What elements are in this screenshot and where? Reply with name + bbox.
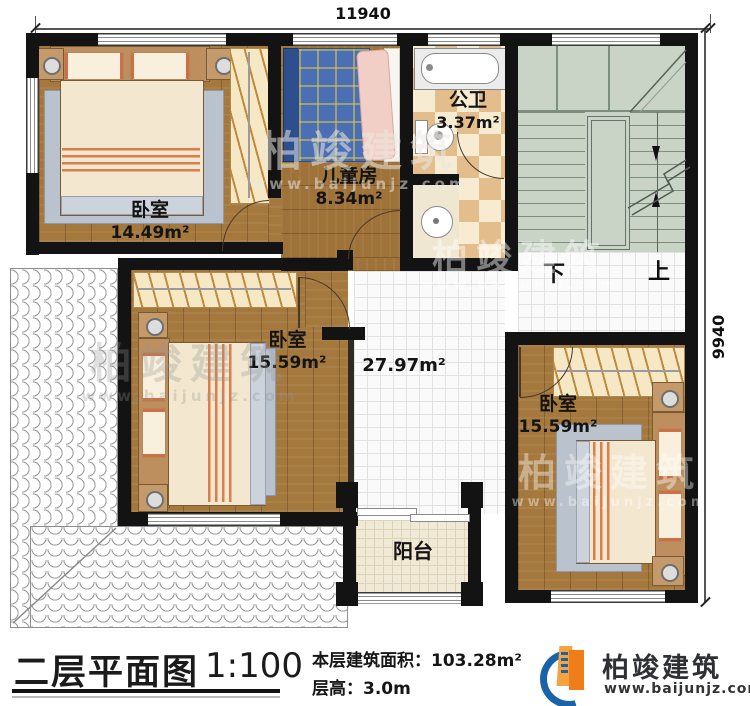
bedroom2-name: 卧室 — [240, 330, 335, 351]
title-underline-thin — [12, 696, 280, 698]
bathroom-name: 公卫 — [430, 90, 506, 111]
bedroom3-wardrobe-rail — [557, 370, 679, 372]
pillar-balcony-tr — [461, 482, 483, 508]
wall-bath-stairs — [505, 46, 518, 266]
brand-logo-windows-icon — [561, 652, 568, 676]
hall-area: 27.97m² — [352, 356, 456, 376]
window-bedroom3-bottom — [551, 590, 665, 603]
bedroom3-bed-fold — [576, 441, 590, 563]
floor-height-text: 层高：3.0m — [312, 674, 411, 699]
stairs-up-label: 上 — [648, 254, 670, 286]
bedroom1-name: 卧室 — [95, 200, 205, 221]
bedroom3-name: 卧室 — [512, 394, 604, 415]
floor-plan-sheet: 卧室 14.49m² 儿童房 8.34m² 公卫 3.37m² 卧室 15.59… — [0, 0, 750, 706]
wall-bedroom3-left — [505, 332, 518, 603]
roof-bottom — [30, 526, 348, 628]
bedroom1-pillow-right — [130, 52, 190, 80]
kids-door-floor-patch — [348, 258, 400, 271]
bedroom1-area: 14.49m² — [95, 224, 205, 243]
wall-kids-bath — [400, 46, 413, 258]
sheet-scale: 1:100 — [205, 646, 303, 686]
dim-top-value: 11940 — [320, 4, 406, 23]
hall-floor — [354, 271, 505, 514]
wall-basin-stub — [413, 174, 459, 185]
wall-bedroom2-top — [118, 258, 305, 270]
stairs-arrow-down — [652, 146, 660, 161]
door-bedroom3-leaf — [519, 347, 521, 397]
sheet-title: 二层平面图 — [14, 644, 199, 695]
pillar-balcony-tl — [336, 482, 358, 508]
dim-right-line — [704, 28, 706, 603]
wall-bedroom1-kids — [268, 46, 281, 198]
bedroom3-area: 15.59m² — [508, 418, 608, 437]
sliding-door-pane-right — [410, 514, 470, 522]
kids-room-name: 儿童房 — [293, 166, 405, 187]
bedroom1-nightstand-left — [36, 48, 64, 80]
sliding-door-pane-left — [357, 508, 417, 516]
window-kids-top — [293, 33, 397, 46]
window-stairs-top — [552, 33, 660, 46]
bedroom1-wardrobe — [230, 48, 270, 204]
wall-right-exterior — [685, 33, 698, 603]
bedroom1-bed-stripe — [62, 148, 200, 172]
brand-website: www.baijunjz.com — [604, 681, 750, 697]
bedroom3-nightstand-bottom — [652, 556, 684, 586]
bedroom3-pillow-top — [658, 428, 682, 480]
window-bedroom2-bottom — [148, 513, 280, 526]
bathtub-drain — [426, 64, 433, 71]
dim-right-tick-bottom — [700, 597, 711, 608]
stair-well-inner — [591, 120, 626, 246]
stairs-vline1 — [556, 46, 558, 110]
bedroom2-area: 15.59m² — [233, 354, 341, 373]
bedroom2-bed-stripe — [208, 344, 234, 502]
bedroom2-wardrobe-rail — [137, 288, 291, 290]
bedroom3-pillow-bottom — [658, 490, 682, 542]
window-bedroom1-top — [98, 33, 226, 46]
bedroom2-nightstand-top — [138, 312, 168, 338]
stairs-treads-left — [518, 112, 585, 252]
kids-room-area: 8.34m² — [298, 190, 400, 209]
bedroom2-wardrobe — [133, 272, 297, 308]
toilet-bowl-dot — [434, 131, 443, 140]
title-underline-thick — [12, 689, 280, 693]
dim-top-line — [35, 28, 710, 30]
bedroom2-nightstand-bottom — [138, 484, 168, 512]
floor-area-text: 本层建筑面积：103.28m² — [312, 646, 522, 671]
brand-logo-building-front-icon — [569, 650, 584, 690]
stairs-guide-line — [657, 112, 658, 252]
door-bedroom2-leaf — [298, 277, 300, 328]
pillar-balcony-br — [461, 582, 483, 606]
stairs-vline2 — [608, 46, 610, 110]
bathroom-area: 3.37m² — [428, 114, 508, 132]
pillar-balcony-bl — [336, 582, 358, 606]
wall-bath-bottom — [400, 258, 518, 271]
bedroom3-nightstand-top — [652, 382, 684, 412]
bedroom1-wardrobe-rail — [248, 52, 250, 198]
window-bath-top — [428, 33, 500, 46]
wall-bedroom3-top — [505, 332, 698, 345]
stairs-down-label: 下 — [543, 256, 565, 288]
balcony-railing — [358, 592, 461, 604]
window-bedroom1-left — [26, 78, 39, 173]
bedroom1-door-floor-patch — [268, 198, 281, 244]
brand-name: 柏竣建筑 — [602, 646, 722, 685]
balcony-name: 阳台 — [377, 540, 449, 562]
bedroom2-pillow-bottom — [142, 408, 166, 458]
stairs-arrow-up — [652, 192, 660, 207]
stair-well — [587, 116, 630, 250]
bedroom2-pillow-top — [142, 352, 166, 402]
wall-bedroom2-left — [118, 258, 131, 524]
washbasin-drain — [433, 218, 439, 224]
bedroom1-pillow-left — [64, 52, 124, 80]
dim-right-value: 9940 — [709, 307, 727, 367]
